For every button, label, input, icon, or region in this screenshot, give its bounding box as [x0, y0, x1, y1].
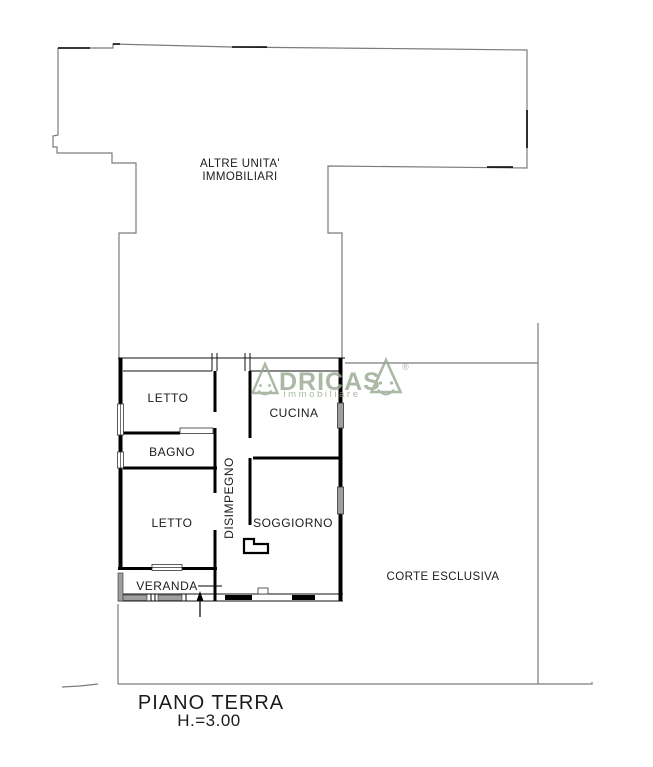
logo-registered-icon: ® — [402, 362, 409, 372]
door-sill-letto-bagno — [180, 428, 213, 434]
upper-unit-label-line2: IMMOBILIARI — [202, 171, 277, 183]
entrance-arrow-icon — [197, 591, 204, 617]
building-accent-lines — [58, 44, 527, 167]
window-cucina-right — [338, 403, 344, 428]
window-soggiorno-right — [338, 487, 344, 514]
door-jamb-soggiorno — [258, 588, 268, 594]
floor-height-note: H.=3.00 — [177, 711, 241, 730]
room-label-bagno: BAGNO — [149, 445, 195, 459]
window-bagno-left — [118, 452, 124, 468]
room-label-letto2: LETTO — [152, 516, 193, 530]
room-label-veranda: VERANDA — [136, 579, 198, 593]
room-label-cucina: CUCINA — [269, 406, 318, 420]
upper-unit-label-line1: ALTRE UNITA' — [200, 158, 280, 170]
logo-tagline: immobiliare — [283, 389, 360, 400]
floorplan-svg: ALTRE UNITA' IMMOBILIARI LETTO CUCINA BA… — [0, 0, 653, 767]
courtyard-label: CORTE ESCLUSIVA — [387, 571, 500, 583]
step-symbol — [244, 539, 268, 553]
floorplan-document: ALTRE UNITA' IMMOBILIARI LETTO CUCINA BA… — [0, 0, 653, 767]
room-label-letto1: LETTO — [148, 391, 189, 405]
room-label-soggiorno: SOGGIORNO — [253, 516, 333, 530]
window-letto2-veranda — [152, 565, 182, 571]
adricasa-logo: DRICAS ® immobiliare — [253, 360, 410, 400]
room-label-disimpegno: DISIMPEGNO — [222, 457, 236, 539]
window-letto1-left — [118, 404, 124, 435]
logo-a-triangle-left-icon — [253, 364, 278, 395]
building-outline — [53, 44, 527, 360]
